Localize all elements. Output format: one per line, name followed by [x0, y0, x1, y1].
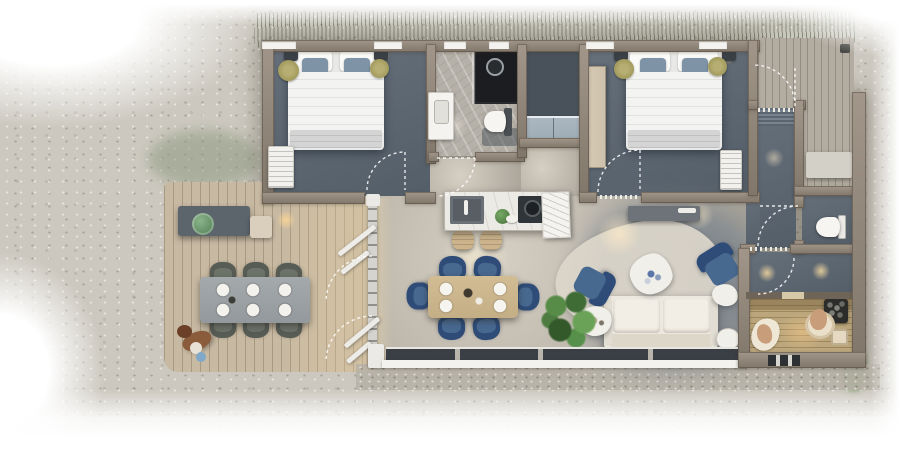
- bed-left: [288, 46, 384, 150]
- entry-floor: [756, 108, 796, 248]
- round-rug: [370, 59, 389, 78]
- clerestory-window: [262, 41, 296, 49]
- duvet: [288, 72, 384, 134]
- sauna-glass-wall: [746, 292, 856, 299]
- leaning-artwork: [541, 192, 571, 239]
- dog-head: [177, 325, 192, 338]
- wall: [428, 152, 439, 162]
- cushion-box: [250, 216, 272, 238]
- wall: [579, 192, 597, 203]
- sofa-back: [609, 334, 713, 347]
- duvet: [626, 72, 722, 134]
- bar-stool: [480, 230, 502, 250]
- bed-right: [626, 46, 722, 150]
- foot-blanket: [628, 130, 720, 148]
- wall-stub: [748, 100, 758, 110]
- bifold-door-track: [368, 196, 377, 366]
- dining-chair: [407, 283, 431, 310]
- seat-cushion: [663, 299, 710, 333]
- entry-doormat: [758, 110, 794, 126]
- shower-head: [486, 58, 504, 76]
- wall-south-right: [738, 352, 866, 368]
- wall: [405, 192, 436, 204]
- green-pot: [192, 213, 214, 235]
- wall: [262, 192, 365, 204]
- window-sill: [382, 360, 746, 368]
- sauna-window-slot: [768, 355, 800, 366]
- deck-bench: [178, 206, 250, 236]
- floor-plan-render: [0, 0, 905, 460]
- seat-cushion: [613, 299, 660, 333]
- wall: [579, 44, 589, 198]
- faucet: [464, 200, 468, 215]
- moss-patch: [148, 130, 260, 188]
- outdoor-bench: [806, 152, 852, 178]
- dog-toy: [196, 352, 206, 362]
- wall-east: [852, 92, 866, 366]
- door-threshold-strip: [377, 198, 393, 362]
- wall: [748, 40, 758, 196]
- clerestory-window: [444, 41, 466, 49]
- wc-toilet: [816, 217, 840, 237]
- basin: [434, 100, 449, 124]
- shower-glass: [472, 46, 475, 104]
- console-decor: [678, 208, 696, 213]
- dining-table: [428, 276, 518, 318]
- bar-stool: [452, 230, 474, 250]
- radiator: [268, 146, 294, 188]
- corridor-floor: [746, 252, 854, 294]
- clerestory-window: [586, 41, 614, 49]
- outdoor-table: [200, 277, 310, 323]
- round-rug: [708, 57, 727, 76]
- cooking-pot: [524, 200, 541, 217]
- sofa: [604, 296, 718, 350]
- dining-chair: [516, 284, 540, 311]
- wall: [519, 138, 587, 148]
- sauna-bucket: [831, 329, 848, 345]
- round-rug: [614, 59, 634, 79]
- door-track-cap: [366, 194, 380, 206]
- round-rug: [278, 60, 299, 81]
- wall-north: [262, 40, 760, 52]
- deck-drain: [840, 44, 850, 53]
- wall: [794, 100, 804, 196]
- wall: [641, 192, 760, 203]
- toilet: [484, 111, 506, 132]
- wall-stub: [794, 196, 804, 208]
- dining-chair: [438, 316, 465, 340]
- clerestory-window: [699, 41, 727, 49]
- foot-blanket: [290, 130, 382, 148]
- clerestory-window: [374, 41, 402, 49]
- dish: [506, 215, 518, 223]
- clerestory-window: [489, 41, 509, 49]
- radiator: [720, 150, 742, 190]
- wall: [738, 248, 750, 366]
